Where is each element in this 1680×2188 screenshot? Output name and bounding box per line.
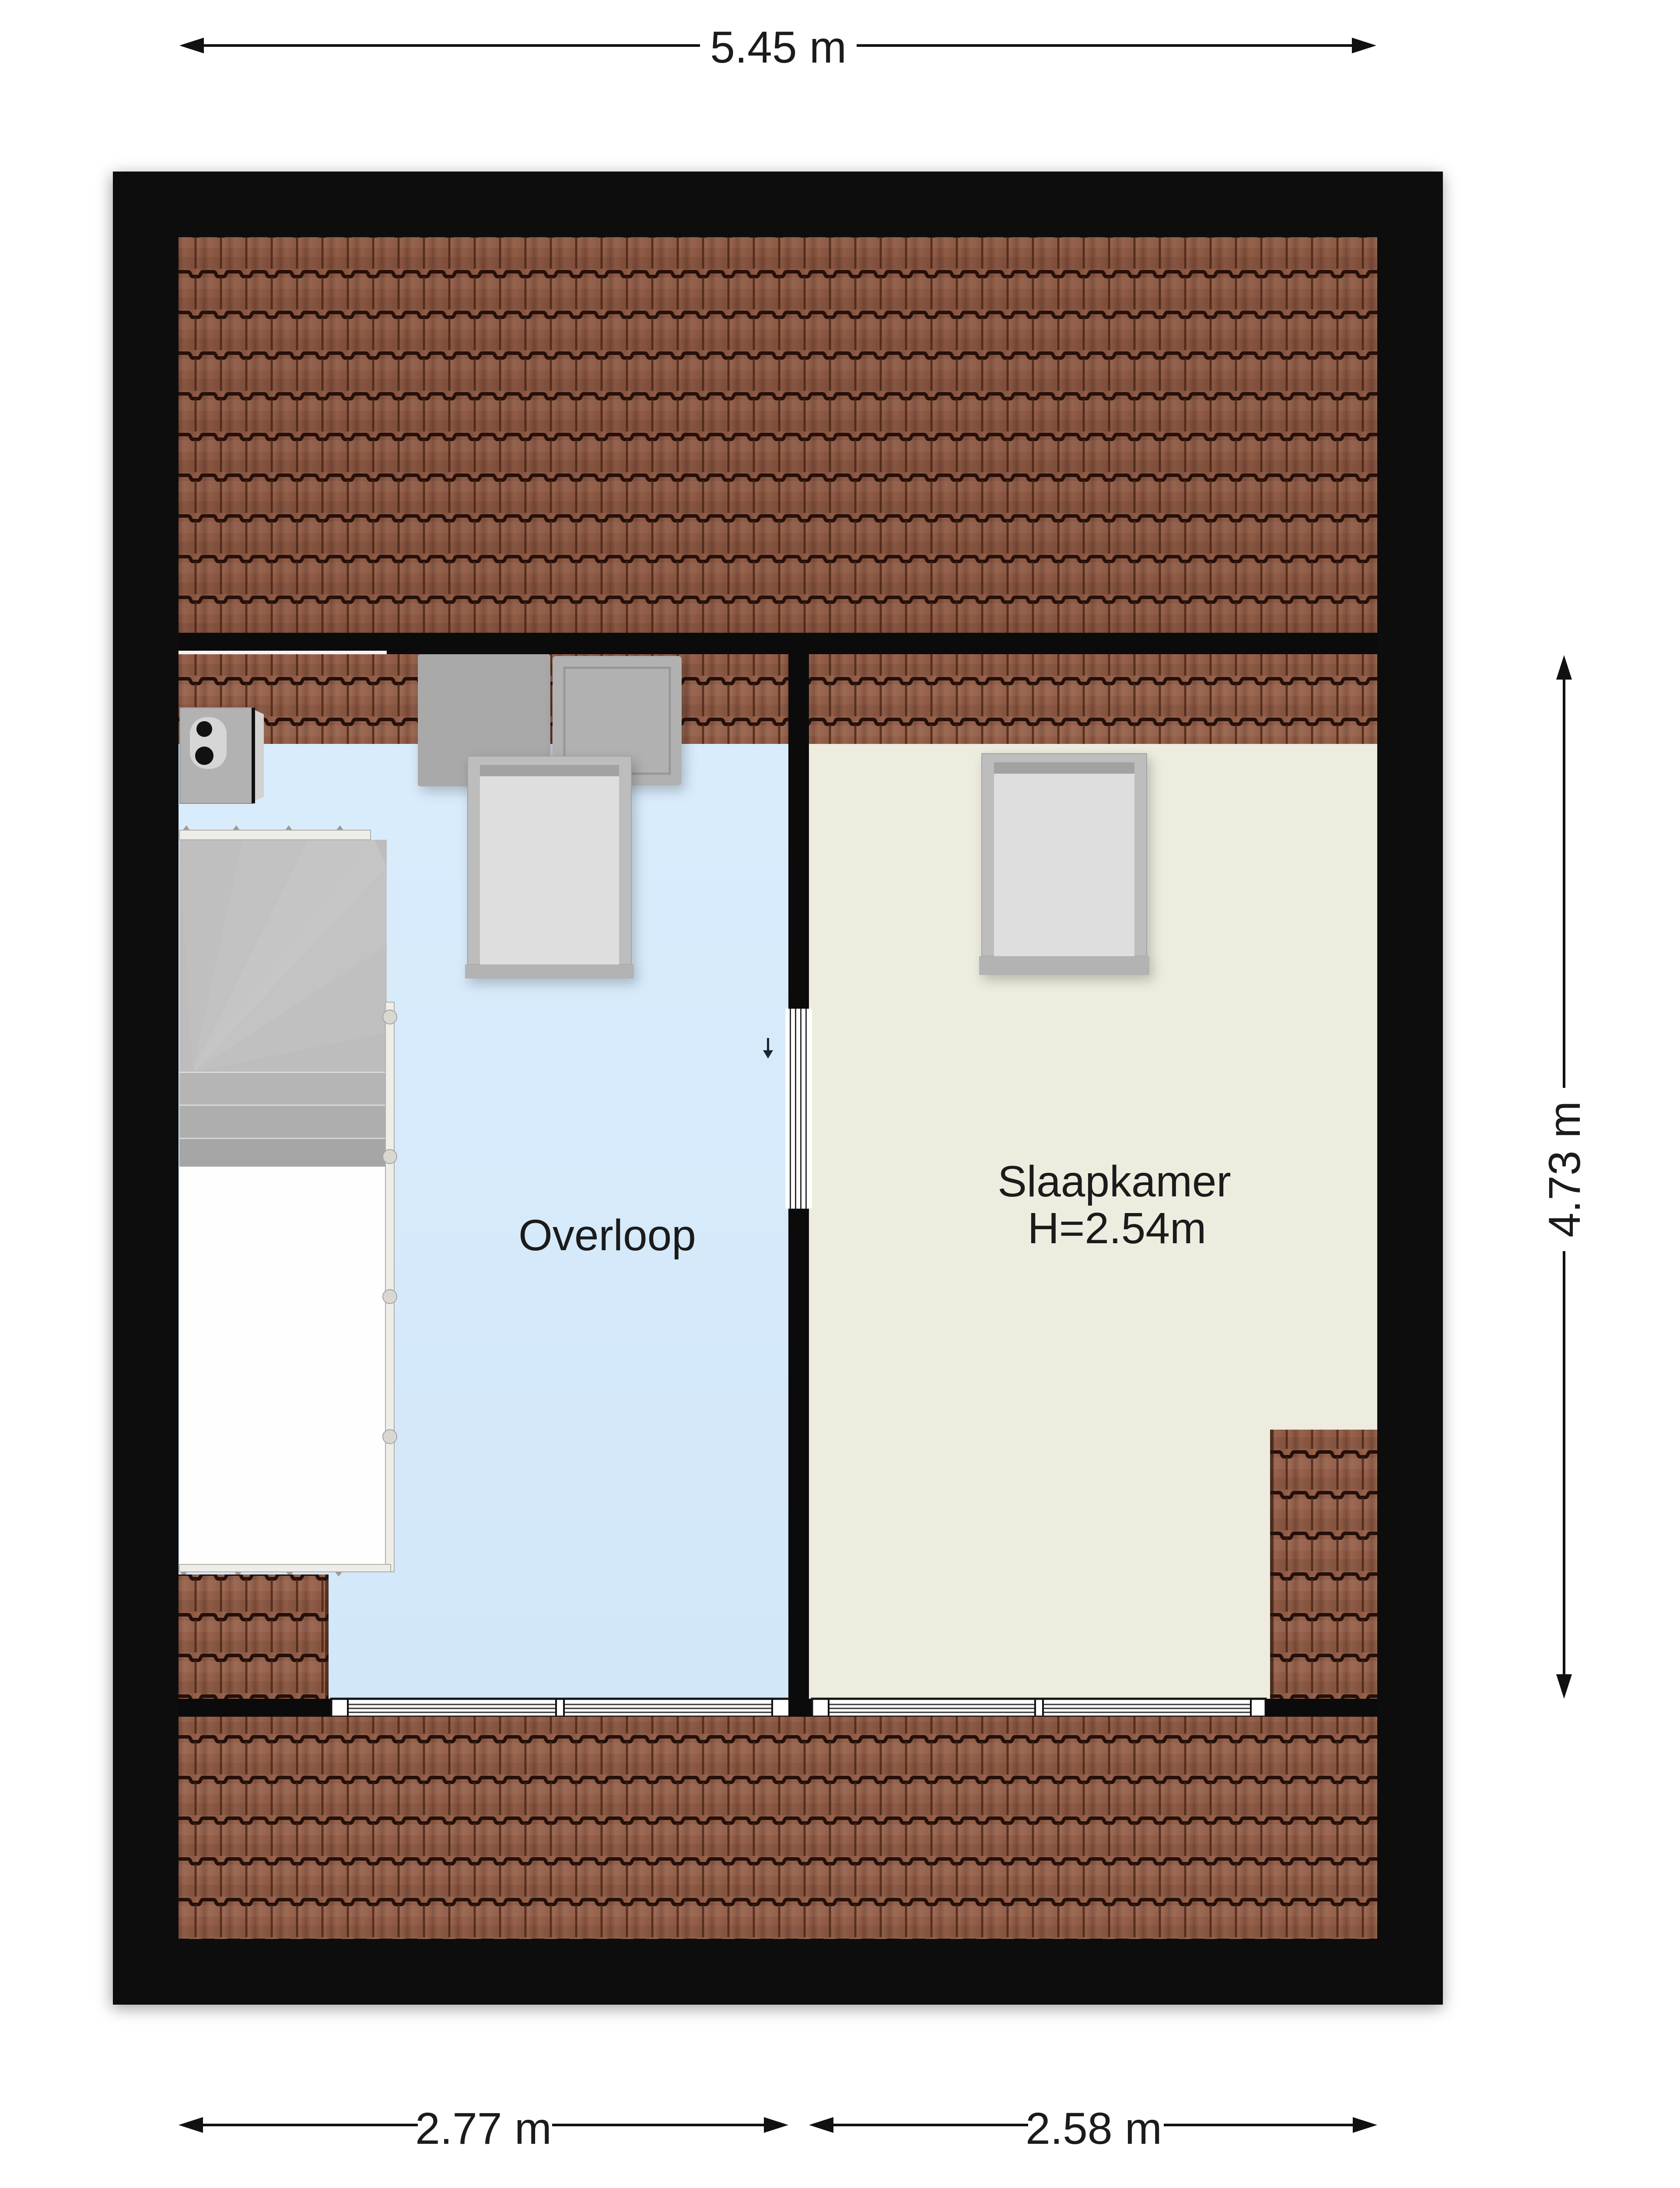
- svg-text:2.77 m: 2.77 m: [415, 2104, 552, 2153]
- svg-text:Slaapkamer: Slaapkamer: [997, 1157, 1231, 1206]
- svg-text:4.73 m: 4.73 m: [1540, 1101, 1589, 1238]
- svg-text:H=2.54m: H=2.54m: [1028, 1204, 1207, 1253]
- svg-text:5.45 m: 5.45 m: [710, 22, 847, 72]
- svg-text:2.58 m: 2.58 m: [1025, 2104, 1162, 2153]
- svg-text:Overloop: Overloop: [518, 1211, 696, 1260]
